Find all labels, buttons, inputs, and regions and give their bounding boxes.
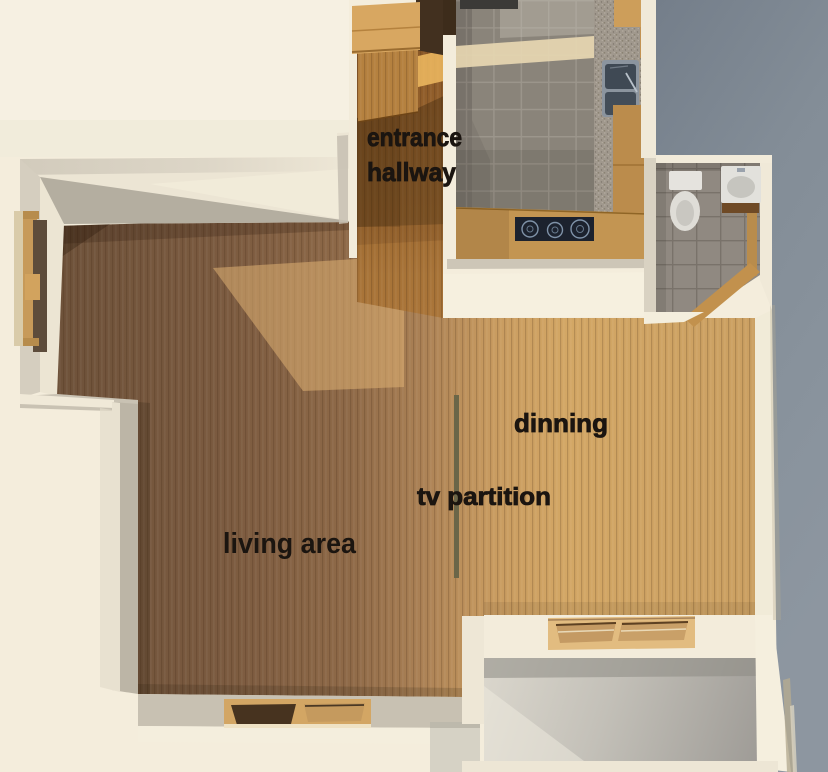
svg-text:hallway: hallway	[367, 157, 457, 187]
svg-text:living area: living area	[223, 528, 357, 560]
svg-text:dinning: dinning	[514, 408, 608, 438]
svg-text:tv partition: tv partition	[417, 483, 551, 511]
svg-text:entrance: entrance	[367, 122, 462, 152]
